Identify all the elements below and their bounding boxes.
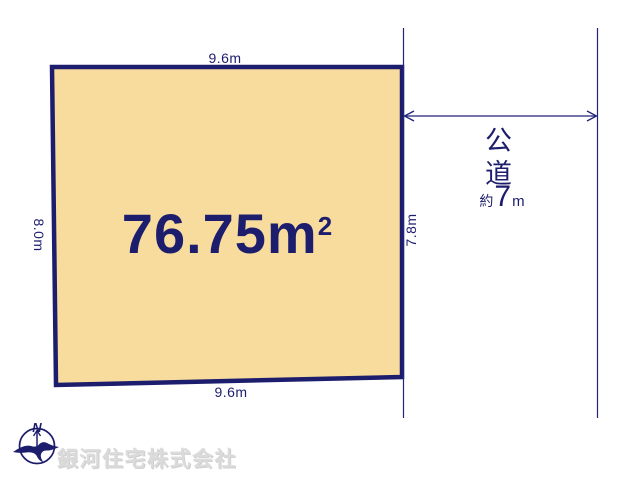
road-width-value: 7	[494, 180, 511, 214]
company-watermark: 銀河住宅株式会社	[57, 443, 237, 473]
road-width-label: 約 7 m	[462, 180, 542, 212]
road-width-arrow	[405, 111, 597, 121]
parcel-area-label: 76.75m2	[52, 196, 402, 264]
dimension-right: 7.8m	[403, 208, 419, 252]
compass-north-label: N	[29, 420, 45, 435]
parcel-area-value: 76.75m	[122, 202, 318, 265]
land-plot-diagram: 9.6m 9.6m 8.0m 7.8m 76.75m2 公道 約 7 m N 銀…	[0, 0, 640, 480]
parcel-area-superscript: 2	[318, 211, 332, 241]
dimension-left: 8.0m	[31, 213, 47, 257]
road-width-unit: m	[512, 193, 525, 210]
dimension-bottom: 9.6m	[201, 384, 261, 400]
road-width-prefix: 約	[479, 191, 493, 211]
dimension-top: 9.6m	[195, 50, 255, 66]
